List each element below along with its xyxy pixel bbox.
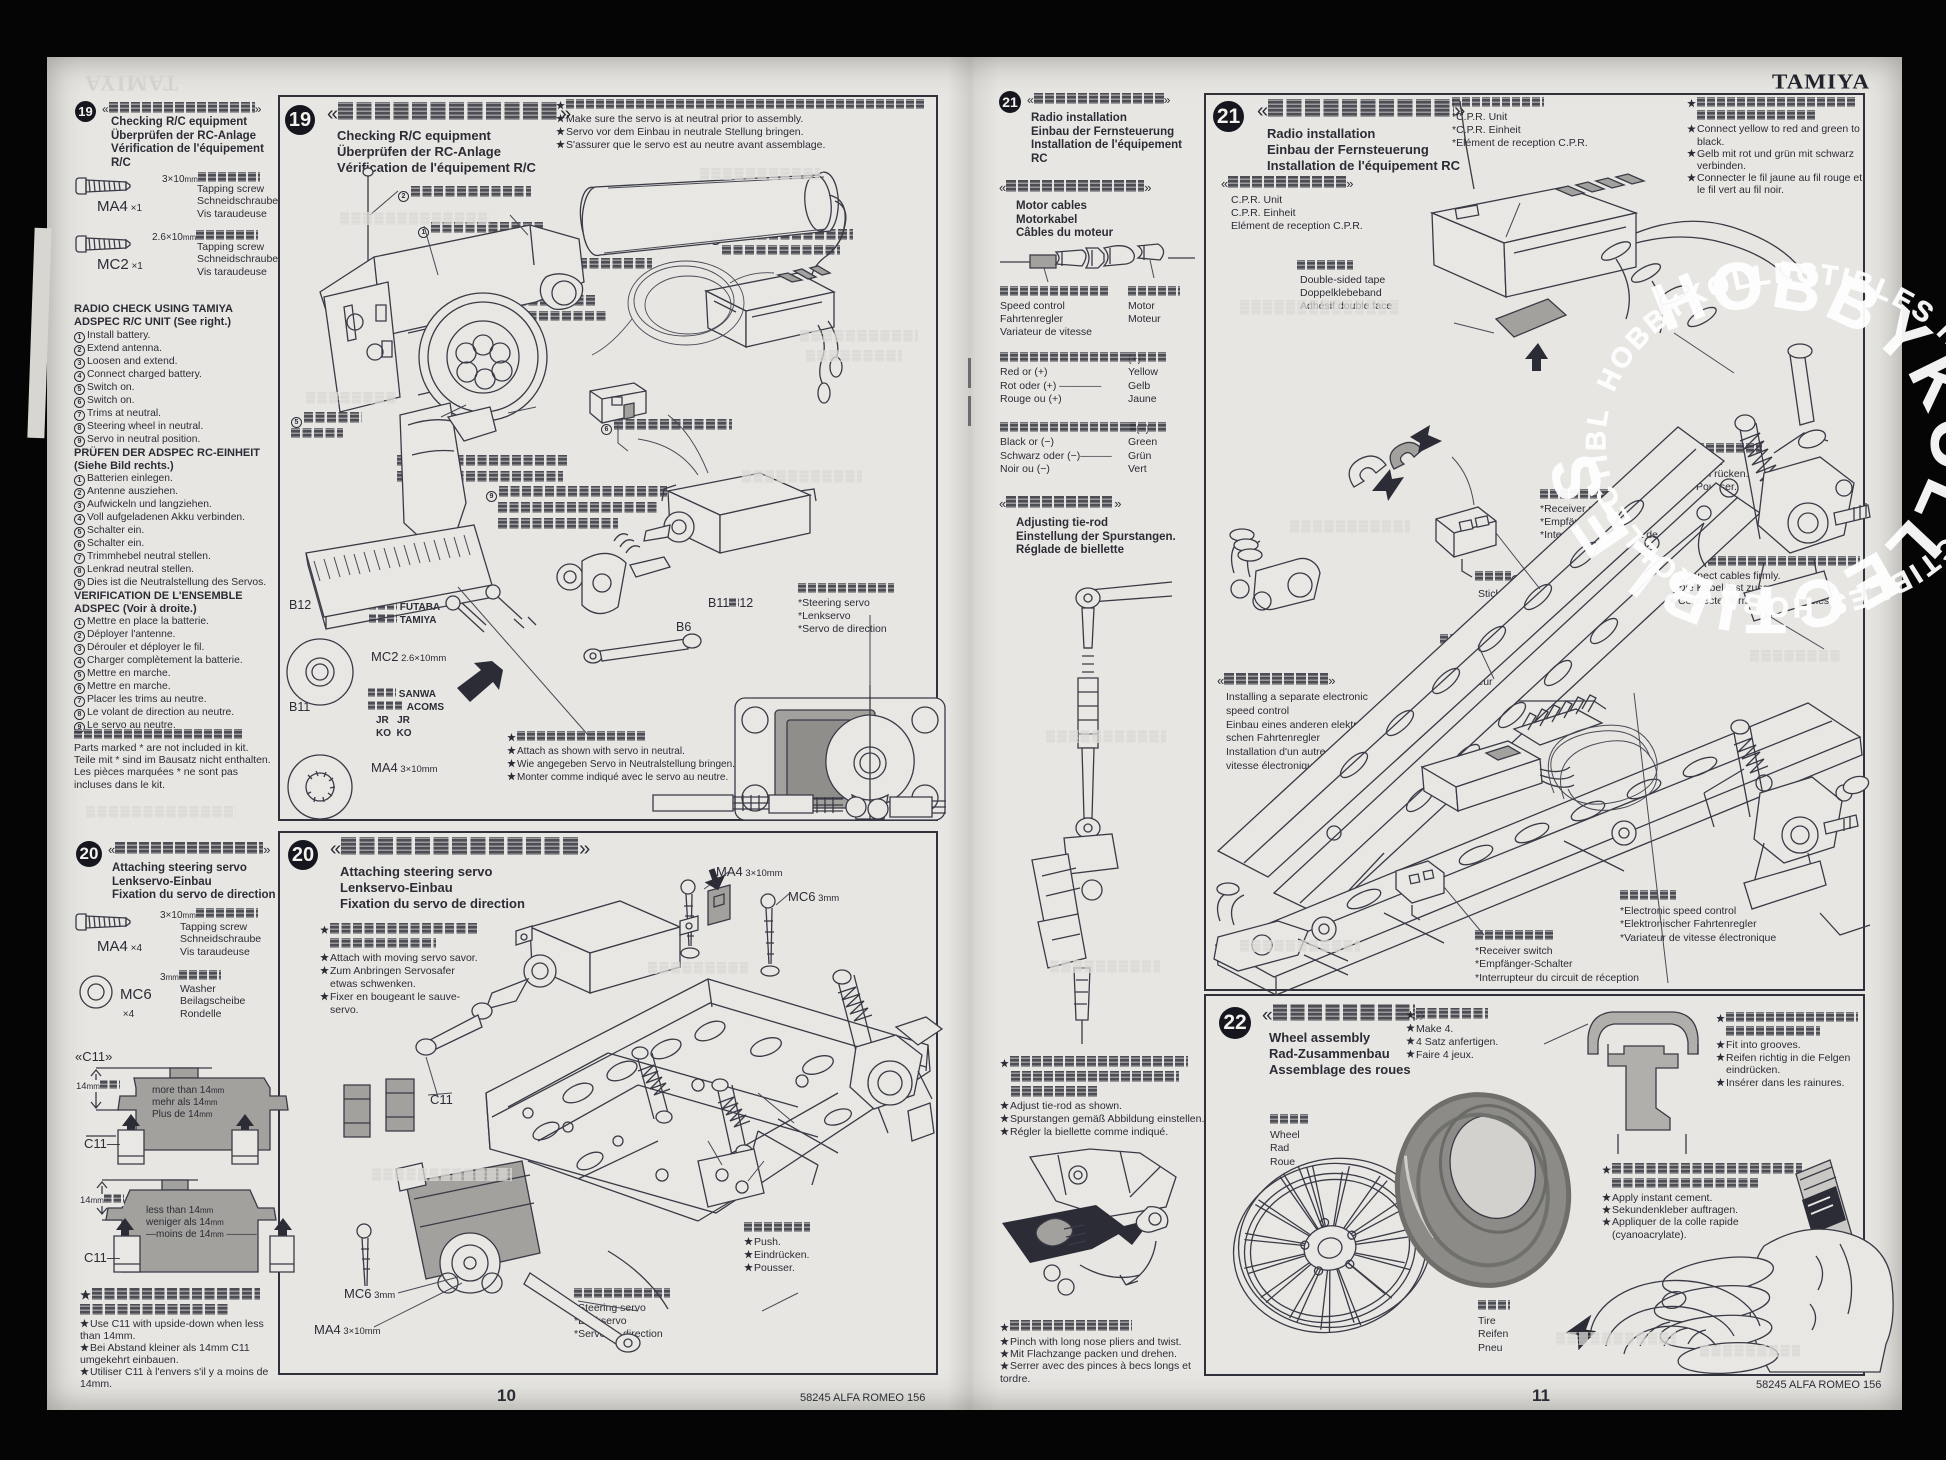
svg-text:HOBBYKOLLECTIBLES HOBBYKOLLECT: HOBBYKOLLECTIBLES HOBBYKOLLECTIBLES HOBB…	[0, 0, 1946, 623]
